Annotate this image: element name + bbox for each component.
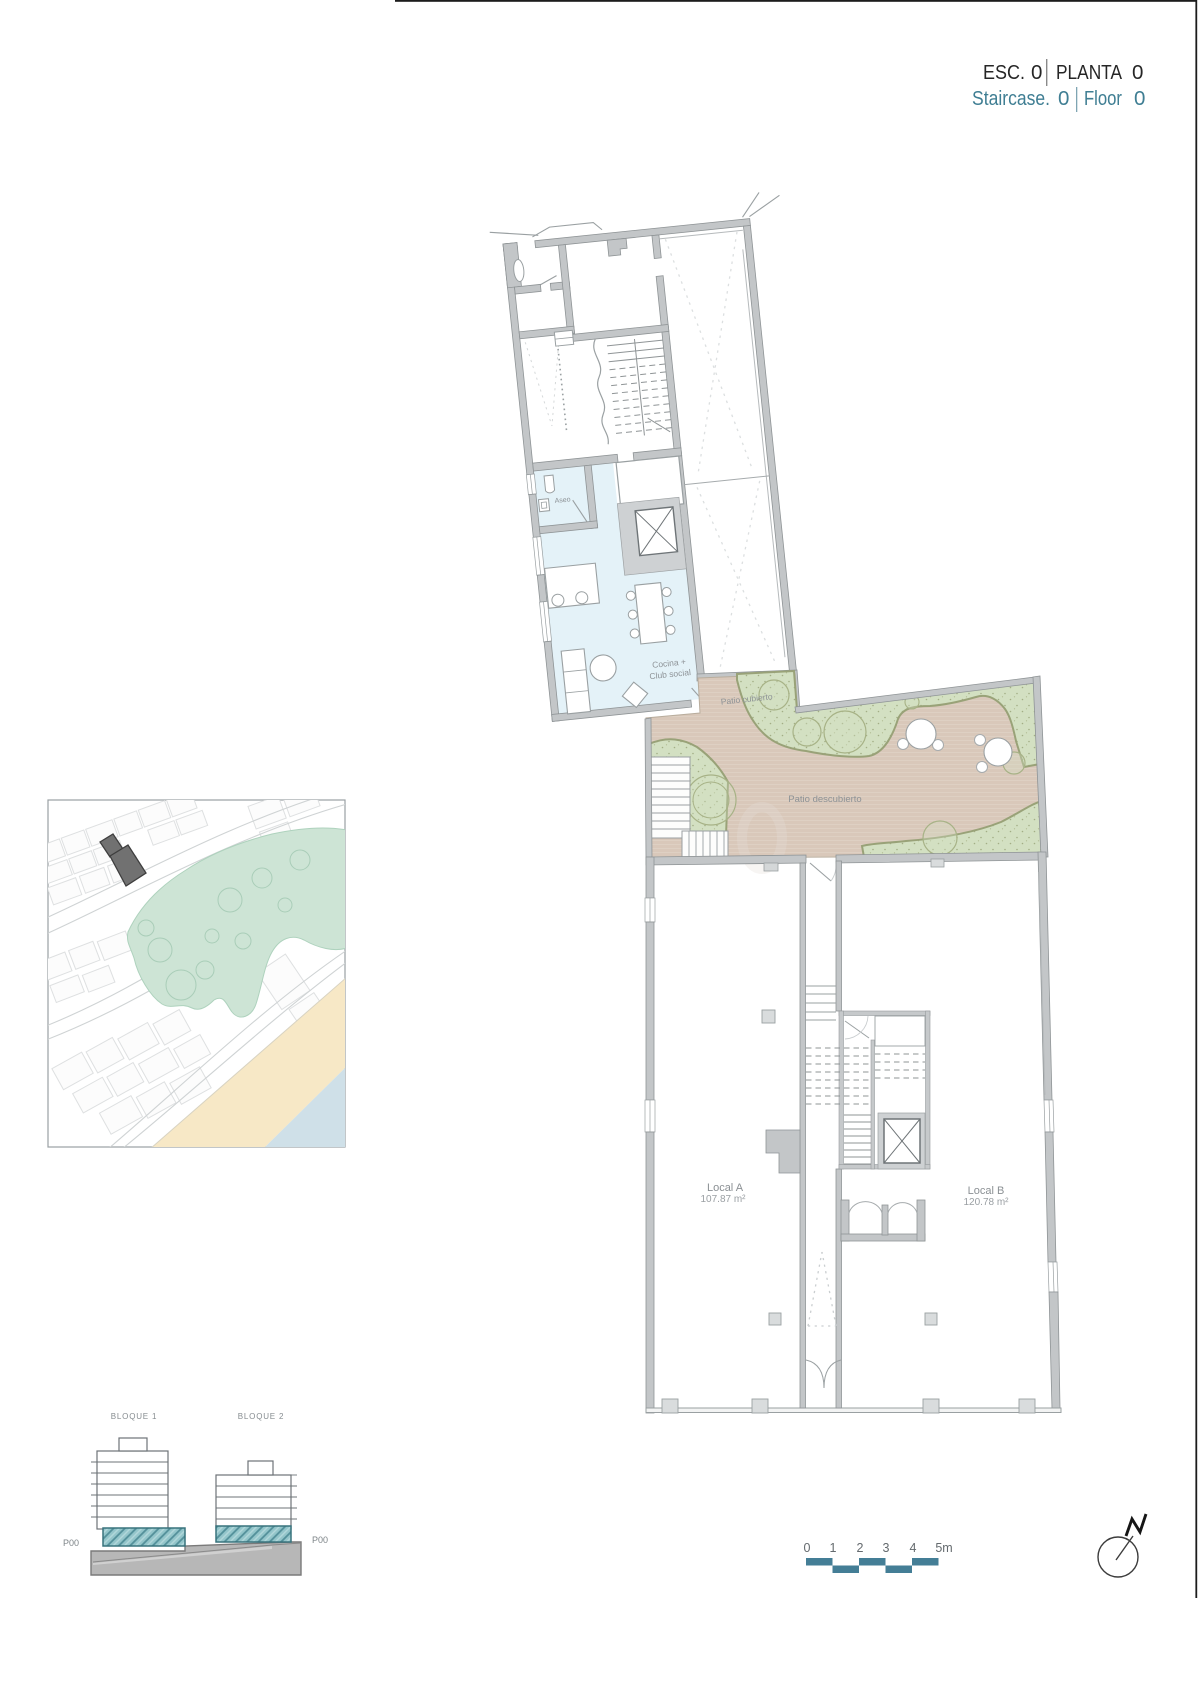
svg-text:Patio descubierto: Patio descubierto	[788, 794, 861, 805]
svg-text:0: 0	[804, 1541, 811, 1555]
svg-text:120.78 m²: 120.78 m²	[963, 1197, 1009, 1208]
svg-text:0: 0	[1134, 87, 1145, 110]
svg-text:3: 3	[883, 1541, 890, 1555]
svg-text:2: 2	[857, 1541, 864, 1555]
svg-text:ESC.: ESC.	[983, 61, 1025, 84]
svg-text:Floor: Floor	[1084, 87, 1122, 110]
svg-text:PLANTA: PLANTA	[1056, 61, 1122, 84]
svg-text:4: 4	[910, 1541, 917, 1555]
svg-text:P00: P00	[312, 1535, 328, 1545]
svg-text:1: 1	[830, 1541, 837, 1555]
svg-text:0: 0	[1031, 61, 1042, 84]
svg-text:0: 0	[1132, 61, 1143, 84]
svg-text:BLOQUE 1: BLOQUE 1	[111, 1412, 157, 1421]
svg-text:Local A: Local A	[707, 1182, 744, 1194]
svg-text:0: 0	[1058, 87, 1069, 110]
svg-text:BLOQUE 2: BLOQUE 2	[238, 1412, 284, 1421]
svg-text:Local B: Local B	[968, 1185, 1005, 1197]
svg-text:5m: 5m	[935, 1541, 952, 1555]
svg-text:107.87 m²: 107.87 m²	[700, 1194, 746, 1205]
svg-text:P00: P00	[63, 1538, 79, 1548]
svg-text:Staircase.: Staircase.	[972, 87, 1050, 110]
